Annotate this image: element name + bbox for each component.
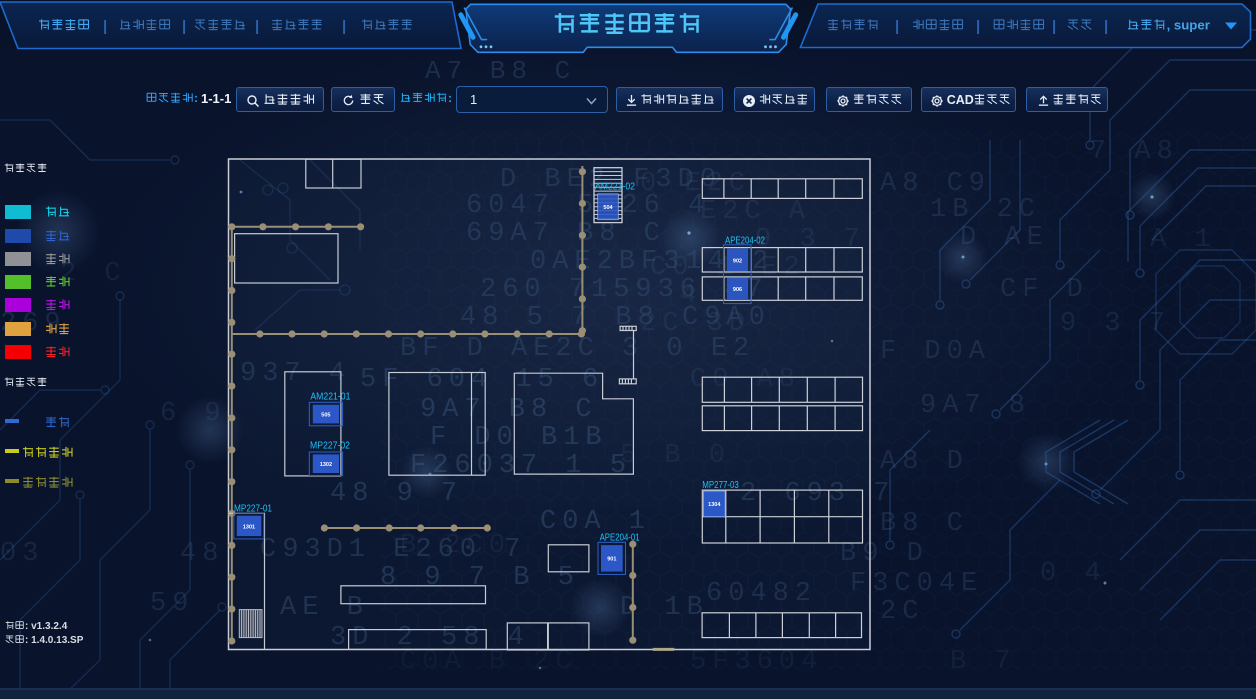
svg-text::: : [448,91,452,105]
svg-text:CAD: CAD [947,93,974,107]
svg-text:: 1.4.0.13.SP: : 1.4.0.13.SP [25,635,84,646]
svg-text:: v1.3.2.4: : v1.3.2.4 [25,621,68,632]
svg-text::: : [194,91,198,105]
svg-text:, super: , super [1167,18,1210,33]
